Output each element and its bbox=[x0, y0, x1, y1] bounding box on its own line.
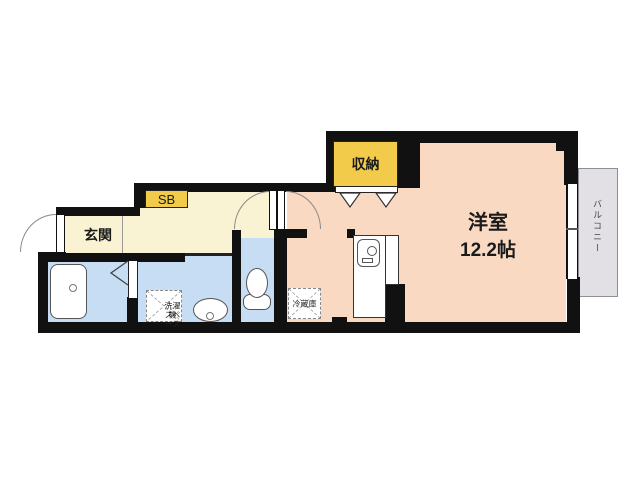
kitchen-counter-extension bbox=[385, 235, 399, 285]
wall-genkan-top bbox=[56, 207, 140, 216]
main-room-size: 12.2帖 bbox=[428, 235, 548, 262]
fridge-space: 冷蔵庫 bbox=[288, 288, 321, 319]
main-room-name: 洋室 bbox=[428, 206, 548, 235]
washer-space-label: 洗濯機 スペース bbox=[147, 301, 181, 310]
kitchen-faucet bbox=[367, 246, 377, 256]
wall-closet-right bbox=[398, 141, 420, 188]
washer-space: 洗濯機 スペース bbox=[146, 290, 182, 322]
main-room-label: 洋室 12.2帖 bbox=[428, 206, 548, 262]
room-main-floor-upper bbox=[420, 141, 566, 192]
entrance-door-arc bbox=[20, 214, 56, 252]
wall-left bbox=[38, 252, 48, 333]
genkan-label: 玄関 bbox=[72, 225, 124, 245]
wall-right-upper bbox=[564, 131, 578, 185]
entrance-door-leaf bbox=[56, 214, 65, 253]
main-room-door-leaf bbox=[277, 190, 285, 230]
fridge-space-label: 冷蔵庫 bbox=[289, 299, 320, 308]
toilet-door-leaf bbox=[269, 190, 277, 230]
wall-maindoor-stub bbox=[280, 229, 307, 238]
shoe-box-label: SB bbox=[158, 192, 175, 207]
bath-folding-door-mark bbox=[109, 260, 129, 286]
balcony-window bbox=[566, 184, 578, 279]
balcony-window-tick bbox=[566, 228, 578, 230]
wall-toilet-right bbox=[274, 229, 287, 323]
wash-basin-drain bbox=[206, 312, 214, 320]
shoe-box: SB bbox=[145, 190, 188, 208]
wall-kitchen-right bbox=[385, 284, 405, 332]
wall-bottom bbox=[38, 322, 580, 333]
bath-door-strip bbox=[128, 261, 138, 298]
wall-toilet-left bbox=[232, 230, 241, 323]
floor-plan: バルコニー bbox=[0, 0, 640, 480]
wall-bathdoor-lower bbox=[127, 297, 138, 323]
wall-bottom-pier bbox=[332, 317, 347, 331]
balcony-label: バルコニー bbox=[591, 199, 604, 254]
toilet-bowl bbox=[246, 268, 268, 298]
kitchen-handle bbox=[362, 258, 373, 263]
bathtub-drain bbox=[69, 284, 77, 292]
bathtub bbox=[50, 264, 87, 319]
closet-label: 収納 bbox=[352, 154, 380, 174]
closet: 収納 bbox=[333, 141, 398, 187]
wall-washroom-entry-line bbox=[185, 253, 232, 256]
closet-folding-door-marks bbox=[336, 192, 398, 209]
